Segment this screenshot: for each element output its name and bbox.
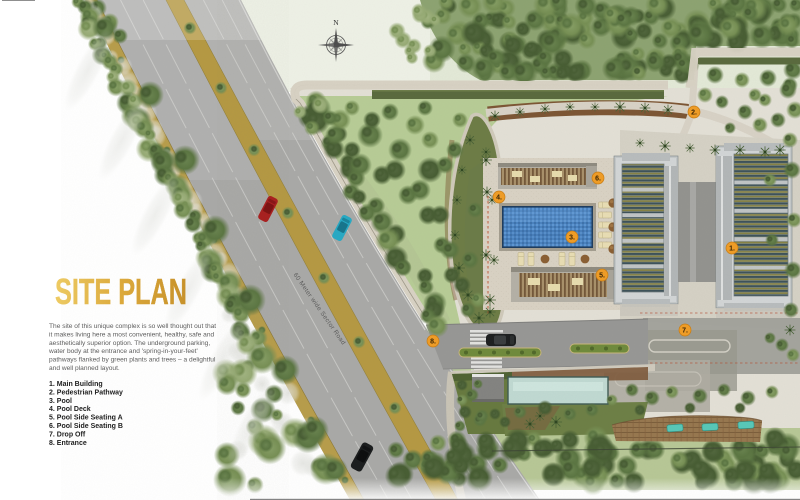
svg-text:3. Pool: 3. Pool	[49, 398, 72, 405]
